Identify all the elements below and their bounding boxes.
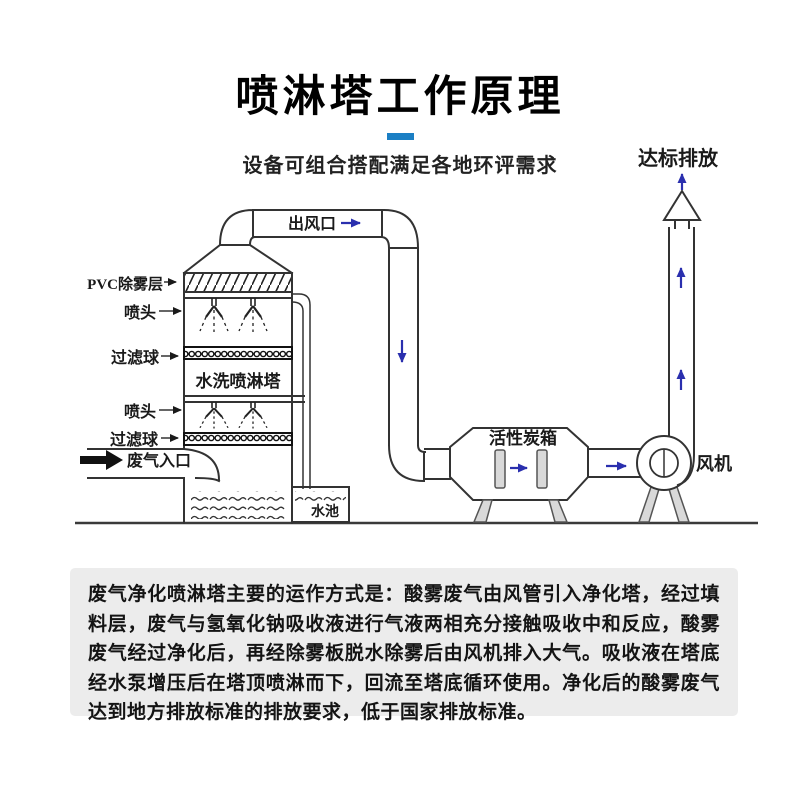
water-pool-assembly: 水池 bbox=[292, 294, 349, 522]
tower-roof bbox=[184, 245, 292, 273]
pvc-layer-label: PVC除雾层 bbox=[87, 275, 163, 293]
tower-walls bbox=[184, 273, 292, 523]
nozzle-icon bbox=[200, 402, 228, 429]
pool-label: 水池 bbox=[311, 503, 339, 520]
fan-label: 风机 bbox=[696, 454, 732, 474]
recirculation-pipe bbox=[292, 294, 310, 489]
fan: 风机 bbox=[637, 436, 732, 522]
cone-cap-icon bbox=[664, 191, 700, 220]
tower-sump-water bbox=[191, 491, 285, 519]
carbon-filter-panel bbox=[495, 450, 505, 488]
gas-inlet-label: 废气入口 bbox=[127, 451, 191, 470]
carbon-filter-panel bbox=[537, 450, 547, 488]
description-text: 废气净化喷淋塔主要的运作方式是：酸雾废气由风管引入净化塔，经过填料层，废气与氢氧… bbox=[88, 580, 720, 728]
nozzle-icon bbox=[239, 402, 267, 429]
filter-ball-label-2: 过滤球 bbox=[110, 430, 159, 449]
emission-label: 达标排放 bbox=[638, 146, 719, 170]
infographic-page: 喷淋塔工作原理 设备可组合搭配满足各地环评需求 bbox=[0, 0, 800, 800]
pvc-demister-band bbox=[184, 273, 292, 292]
filter-ball-band-2 bbox=[184, 433, 292, 445]
fan-leg bbox=[639, 487, 659, 522]
gas-inlet-arrow-icon bbox=[80, 450, 123, 470]
fan-leg bbox=[669, 487, 689, 522]
nozzle-icon bbox=[239, 298, 267, 332]
outlet-label: 出风口 bbox=[288, 214, 336, 233]
filter-ball-band-1 bbox=[184, 347, 292, 359]
nozzle-label-2: 喷头 bbox=[124, 403, 156, 421]
chimney-stack: 达标排放 bbox=[638, 146, 719, 485]
box-leg bbox=[549, 500, 567, 522]
carbon-box-label: 活性炭箱 bbox=[489, 428, 557, 448]
description-box: 废气净化喷淋塔主要的运作方式是：酸雾废气由风管引入净化塔，经过填料层，废气与氢氧… bbox=[70, 568, 738, 716]
filter-ball-label-1: 过滤球 bbox=[111, 348, 160, 367]
callout-labels: PVC除雾层 喷头 过滤球 喷头 过滤球 废气入口 bbox=[80, 275, 191, 470]
activated-carbon-box: 活性炭箱 bbox=[450, 428, 588, 522]
pool-water bbox=[295, 491, 346, 503]
spray-tower: 水洗喷淋塔 bbox=[184, 210, 304, 523]
box-leg bbox=[474, 500, 492, 522]
nozzle-icon bbox=[200, 298, 228, 332]
nozzle-label-1: 喷头 bbox=[124, 304, 156, 322]
tower-name-label: 水洗喷淋塔 bbox=[196, 371, 282, 391]
